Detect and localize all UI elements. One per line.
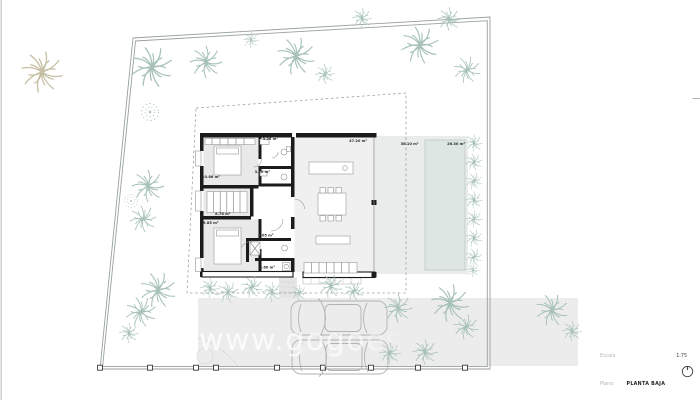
fence-post [275,365,280,370]
palm-tree-icon [449,52,486,89]
watermark-text: www.gogoes [199,323,403,358]
fence-post [416,365,421,370]
scale-label: Escala [600,353,615,359]
palm-tree-icon [273,33,319,79]
palm-tree-icon [121,292,160,331]
room-area-label: 36.10 m² [401,142,419,146]
toilet [282,245,288,251]
fence-post [98,365,103,370]
palm-tree-icon [465,134,482,151]
palm-tree-icon [200,278,220,298]
toilet [281,149,287,155]
palm-tree-icon [18,48,66,96]
palm-tree-icon [311,60,339,88]
toilet [281,174,287,180]
room-area-label: 4.05 m² [258,234,274,238]
title-block: Escala 1:75 Plano PLANTA BAJA [600,353,693,387]
room-area-label: 47.20 m² [349,139,367,143]
bush-icon [125,195,138,208]
palm-tree-icon [127,203,158,234]
site-plan-drawing: 3.26 m² 3.80 m² 10.86 m² 8.76 m² 9.85 m²… [0,0,700,400]
dining-table [318,193,346,215]
room-area-label: 26.30 m² [447,142,465,146]
plan-label: Plano [600,381,613,387]
kitchen-counter [316,236,350,244]
fence-post [148,365,153,370]
fence-post [463,365,468,370]
room-area-label: 10.86 m² [202,175,220,179]
floor-plan-page: { "plan": { "watermark": "www.gogoes", "… [0,0,700,400]
palm-tree-icon [119,323,139,343]
room-area-label: 3.80 m² [255,170,271,174]
room-area-label: 9.85 m² [203,221,219,225]
bush-icon [142,104,159,121]
palm-tree-icon [465,191,482,208]
room-area-label: 3.60 m² [260,266,276,270]
north-arrow-icon [682,366,692,376]
fence-post [194,365,199,370]
palm-tree-icon [394,19,446,71]
room-area-label: 3.26 m² [263,137,279,141]
fence-post [214,365,219,370]
pool [425,140,465,270]
fence-post [369,365,374,370]
plan-name: PLANTA BAJA [627,381,666,387]
room-area-label: 8.76 m² [215,212,231,216]
palm-tree-icon [190,46,222,78]
scale-value: 1:75 [676,353,687,359]
